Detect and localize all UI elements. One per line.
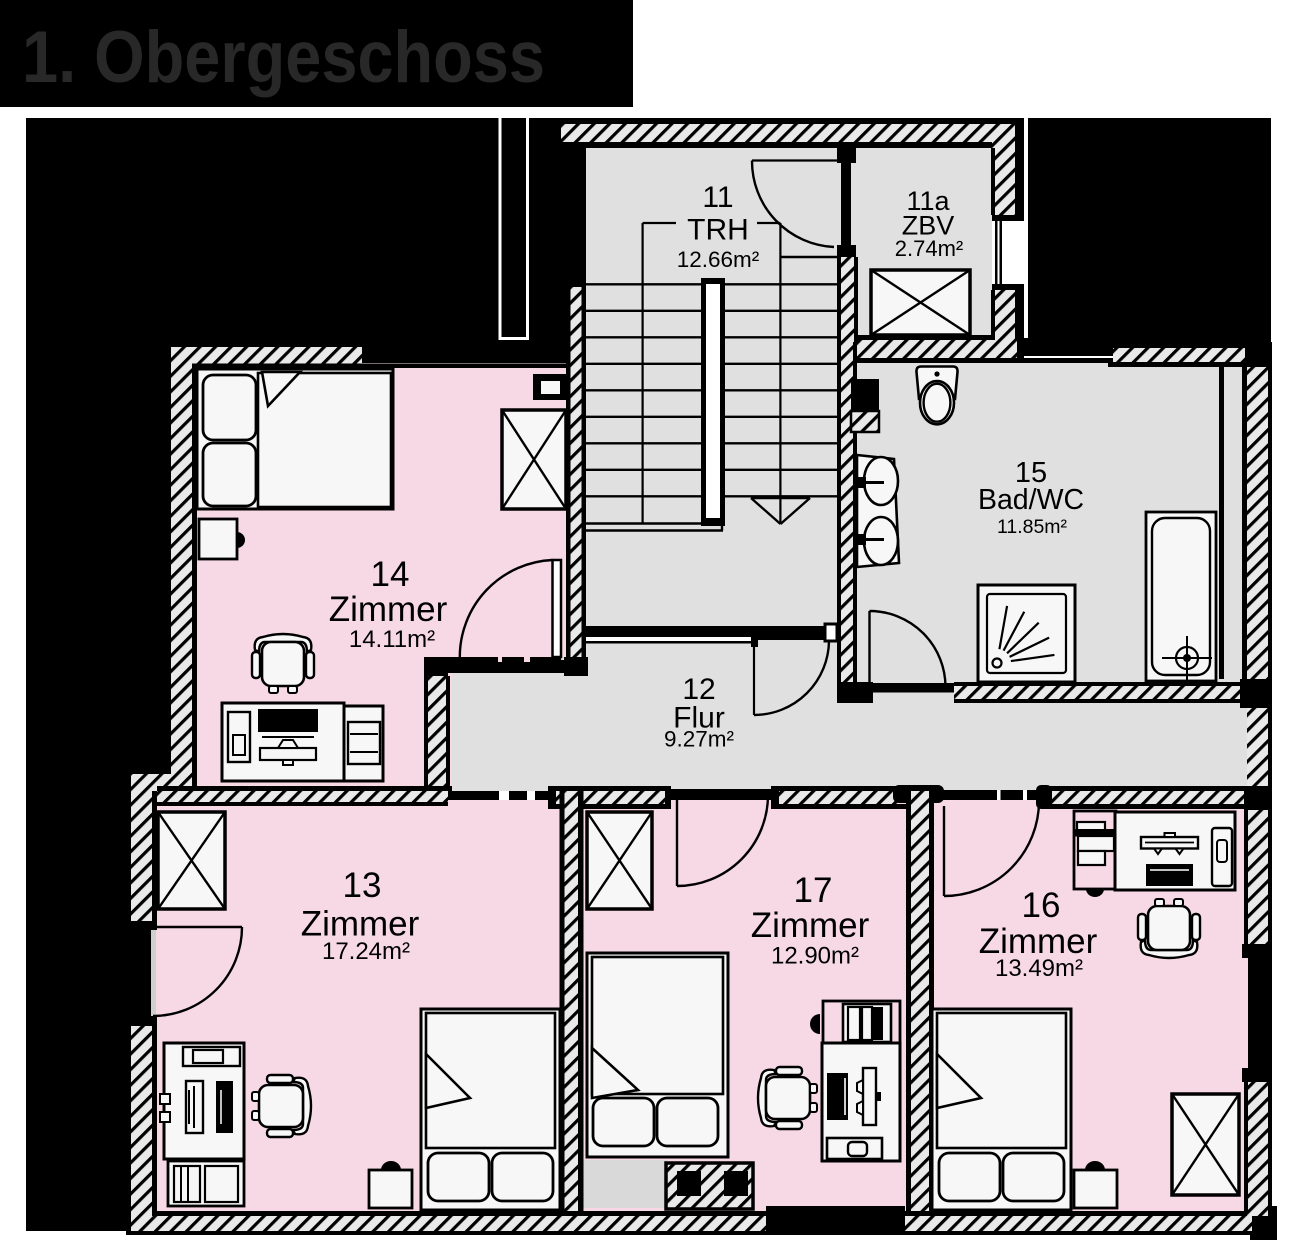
- svg-text:16: 16: [1022, 886, 1061, 925]
- svg-text:14: 14: [371, 555, 410, 594]
- svg-text:11: 11: [702, 181, 733, 214]
- svg-text:11.85m²: 11.85m²: [997, 516, 1068, 538]
- svg-text:Zimmer: Zimmer: [329, 590, 448, 629]
- svg-text:17.24m²: 17.24m²: [322, 938, 410, 965]
- svg-text:2.74m²: 2.74m²: [895, 236, 963, 261]
- svg-text:13: 13: [343, 866, 382, 905]
- svg-text:14.11m²: 14.11m²: [349, 626, 435, 653]
- svg-text:TRH: TRH: [687, 214, 749, 247]
- svg-text:Zimmer: Zimmer: [751, 906, 870, 945]
- svg-text:Bad/WC: Bad/WC: [978, 484, 1084, 516]
- svg-text:17: 17: [794, 871, 833, 910]
- svg-text:9.27m²: 9.27m²: [664, 727, 735, 752]
- svg-text:1. Obergeschoss: 1. Obergeschoss: [22, 17, 545, 98]
- svg-text:13.49m²: 13.49m²: [995, 955, 1083, 982]
- svg-text:12.90m²: 12.90m²: [771, 943, 859, 970]
- svg-text:12.66m²: 12.66m²: [677, 247, 760, 272]
